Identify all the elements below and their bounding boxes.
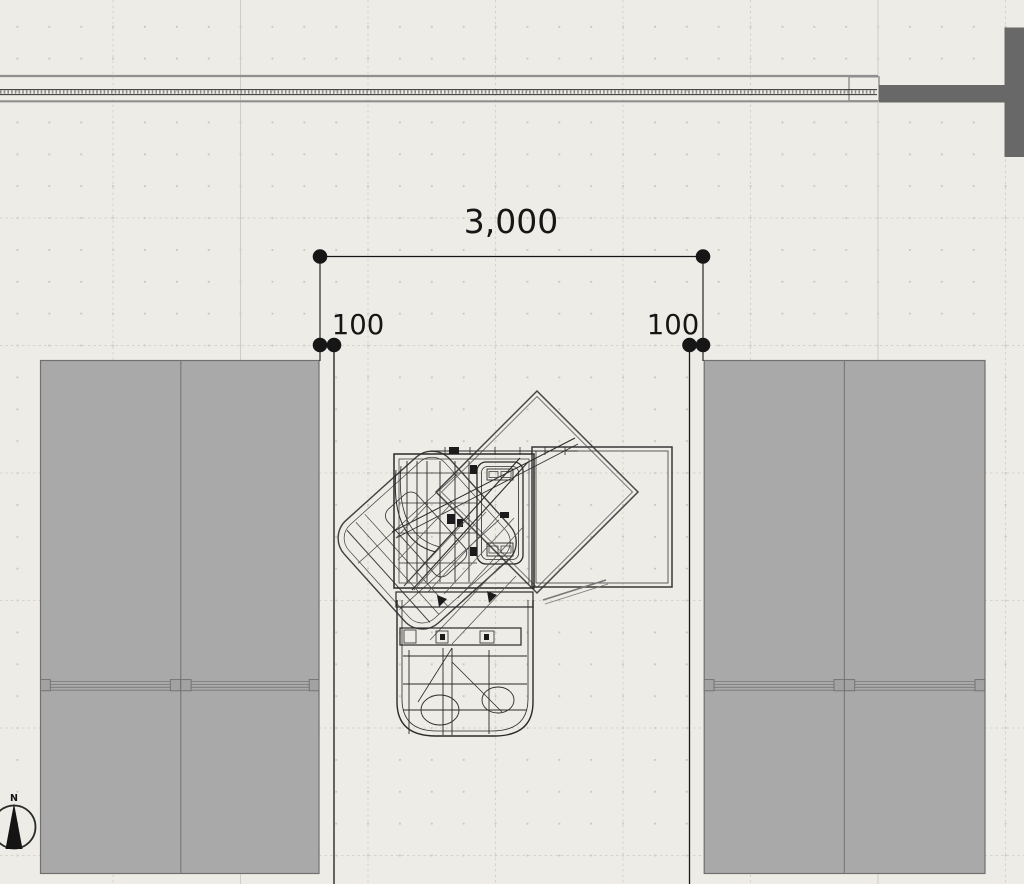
wall-panel-right: [704, 361, 985, 874]
dimension-marker: [696, 249, 711, 264]
dimension-left-offset-label: 100: [332, 309, 385, 341]
dimension-marker: [313, 249, 328, 264]
wall-end-cap: [849, 77, 879, 101]
dimension-total-label: 3,000: [464, 202, 558, 241]
drawing-canvas[interactable]: 3,000 100 100 N: [0, 0, 1024, 884]
north-label: N: [10, 793, 18, 804]
wall-panel-left: [41, 361, 320, 874]
dimension-right-offset-label: 100: [647, 309, 700, 341]
dimension-marker: [313, 338, 328, 353]
